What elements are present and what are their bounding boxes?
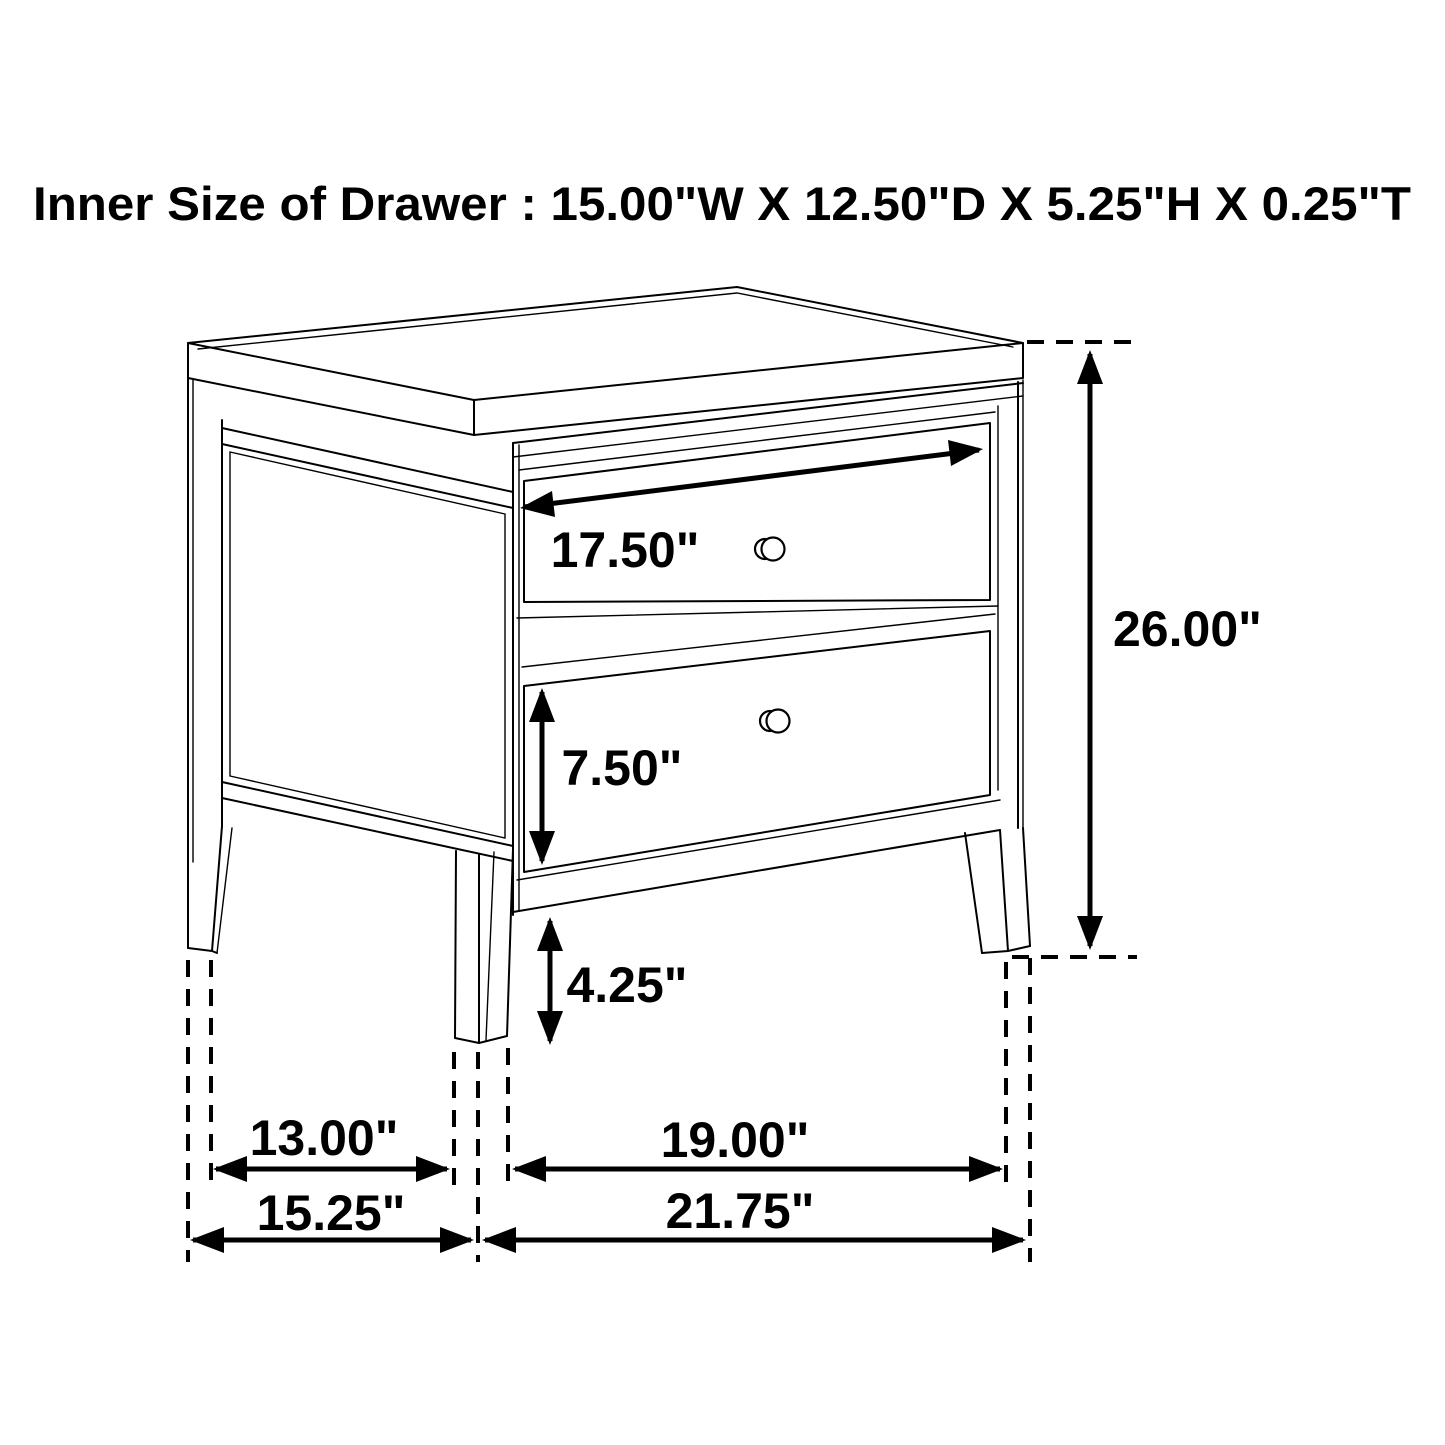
diagram-page: Inner Size of Drawer : 15.00"W X 12.50"D… bbox=[0, 0, 1445, 1445]
dim-label-overall-height: 26.00" bbox=[1113, 601, 1262, 657]
front-left-leg-outer-edge bbox=[455, 851, 456, 1038]
front-right-foot bbox=[982, 946, 1030, 953]
tabletop-right-band bbox=[474, 343, 1023, 435]
drawer1-recess-line bbox=[519, 412, 995, 470]
side-bottom-rail-upper bbox=[222, 782, 513, 846]
dim-lower-drawer-height: 7.50" bbox=[529, 688, 683, 865]
drawer2-knob bbox=[760, 710, 790, 733]
drawer1-knob bbox=[755, 538, 785, 561]
front-left-foot bbox=[455, 1036, 507, 1043]
front-right-leg-outer-edge bbox=[965, 833, 982, 953]
front-right-leg-back-edge bbox=[1023, 828, 1030, 946]
dim-label-drawer-front-width: 17.50" bbox=[551, 522, 700, 578]
dim-overall-height: 26.00" bbox=[1077, 350, 1262, 950]
front-left-leg-inner-edge bbox=[507, 849, 513, 1036]
dim-label-side-leg-span: 13.00" bbox=[250, 1110, 399, 1166]
front-right-leg-corner-edge bbox=[1000, 830, 1008, 951]
bottom-rail-lower-edge bbox=[513, 830, 1000, 912]
dim-overall-width: 21.75" bbox=[482, 1183, 1026, 1253]
front-left-leg-hairline bbox=[486, 852, 494, 1040]
front-top-edge bbox=[513, 383, 1023, 443]
dim-label-front-leg-span: 19.00" bbox=[661, 1112, 810, 1168]
back-left-leg-inner-edge bbox=[212, 826, 222, 951]
nightstand-diagram: Inner Size of Drawer : 15.00"W X 12.50"D… bbox=[0, 0, 1445, 1445]
dim-drawer-front-width: 17.50" bbox=[520, 440, 983, 578]
mid-rail-line bbox=[517, 606, 998, 618]
dim-label-overall-width: 21.75" bbox=[666, 1183, 815, 1239]
nightstand-outline bbox=[188, 287, 1030, 1043]
dim-label-overall-depth: 15.25" bbox=[257, 1185, 406, 1241]
tabletop-top-face bbox=[188, 287, 1023, 400]
back-left-leg-hairline bbox=[217, 828, 232, 953]
dim-label-lower-drawer-height: 7.50" bbox=[561, 740, 682, 796]
bottom-rail-recess-line bbox=[517, 800, 1000, 880]
side-recessed-panel bbox=[230, 452, 505, 838]
diagram-title: Inner Size of Drawer : 15.00"W X 12.50"D… bbox=[33, 177, 1411, 230]
side-top-rail-lower bbox=[222, 444, 513, 508]
tabletop-left-band bbox=[188, 343, 474, 435]
dim-leg-clearance: 4.25" bbox=[537, 917, 688, 1045]
dim-front-leg-span: 19.00" bbox=[512, 1112, 1003, 1182]
dim-side-leg-span: 13.00" bbox=[213, 1110, 450, 1182]
dim-overall-depth: 15.25" bbox=[190, 1185, 474, 1253]
dim-label-leg-clearance: 4.25" bbox=[566, 957, 687, 1013]
